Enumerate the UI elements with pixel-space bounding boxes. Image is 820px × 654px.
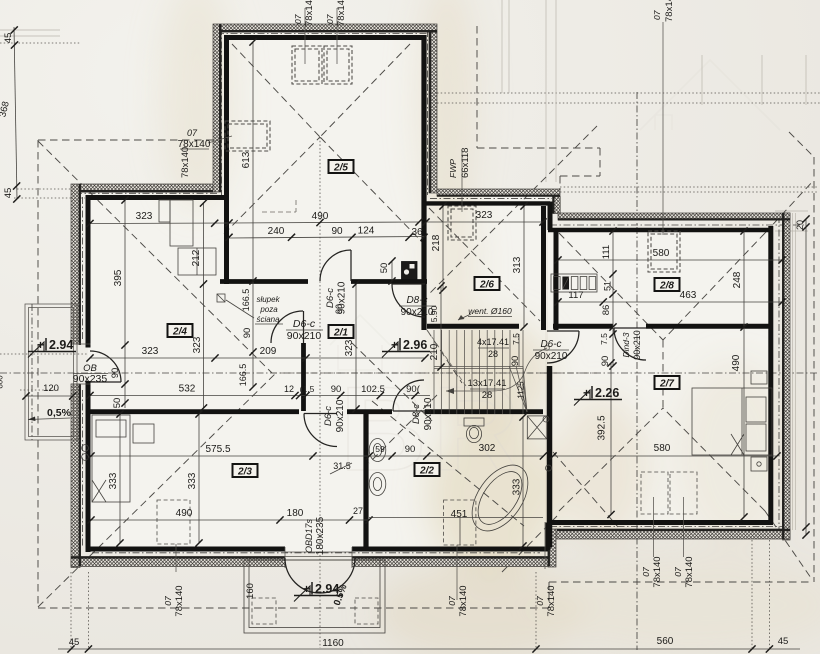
svg-text:2/1: 2/1 — [333, 328, 348, 339]
svg-text:45: 45 — [3, 188, 14, 199]
svg-text:240: 240 — [268, 226, 285, 237]
svg-text:323: 323 — [476, 210, 493, 221]
svg-text:302: 302 — [479, 443, 496, 454]
svg-text:2/4: 2/4 — [172, 327, 187, 338]
svg-text:124: 124 — [358, 226, 375, 237]
svg-text:180x235: 180x235 — [315, 516, 326, 555]
svg-text:392.5: 392.5 — [597, 415, 608, 440]
svg-text:613: 613 — [241, 151, 252, 168]
svg-text:90x210: 90x210 — [401, 307, 434, 318]
svg-text:90: 90 — [110, 368, 121, 379]
svg-text:D6-c: D6-c — [540, 339, 561, 350]
svg-text:451: 451 — [451, 509, 468, 520]
svg-text:395: 395 — [113, 269, 124, 286]
svg-text:28: 28 — [488, 349, 498, 359]
svg-text:2.26: 2.26 — [595, 386, 619, 400]
svg-text:90: 90 — [334, 304, 344, 314]
svg-text:0,5%: 0,5% — [47, 407, 72, 419]
svg-text:07: 07 — [447, 596, 457, 606]
svg-text:333: 333 — [512, 478, 523, 495]
svg-text:313: 313 — [512, 256, 523, 273]
svg-text:78x140: 78x140 — [664, 0, 675, 22]
svg-text:78x140: 78x140 — [652, 556, 663, 587]
svg-text:27: 27 — [353, 506, 363, 516]
svg-text:07: 07 — [641, 567, 651, 577]
svg-text:90: 90 — [331, 226, 343, 237]
svg-text:20: 20 — [795, 220, 805, 230]
svg-text:86: 86 — [601, 305, 612, 316]
svg-text:166.5: 166.5 — [238, 364, 248, 387]
svg-text:1125: 1125 — [517, 381, 526, 399]
svg-text:28: 28 — [482, 390, 493, 401]
svg-text:333: 333 — [108, 472, 119, 489]
svg-text:07: 07 — [325, 14, 335, 24]
svg-text:59: 59 — [375, 444, 385, 454]
svg-text:120: 120 — [43, 383, 59, 394]
svg-text:7.5: 7.5 — [599, 333, 609, 345]
svg-text:ścianą: ścianą — [256, 315, 280, 324]
svg-text:2.94: 2.94 — [49, 338, 73, 352]
svg-text:66x118: 66x118 — [460, 148, 471, 178]
svg-text:2/7: 2/7 — [659, 379, 674, 390]
svg-text:323: 323 — [136, 211, 153, 222]
svg-text:490: 490 — [731, 354, 742, 371]
svg-text:575.5: 575.5 — [205, 444, 230, 455]
svg-text:180: 180 — [287, 508, 304, 519]
svg-text:78x140: 78x140 — [336, 0, 347, 26]
svg-text:07: 07 — [673, 567, 683, 577]
svg-text:45: 45 — [69, 637, 80, 648]
svg-text:2/2: 2/2 — [419, 466, 434, 477]
svg-text:323: 323 — [344, 339, 355, 356]
svg-text:78x140: 78x140 — [458, 585, 469, 616]
svg-text:36: 36 — [411, 227, 423, 238]
svg-text:07: 07 — [652, 10, 662, 20]
svg-text:31.5: 31.5 — [333, 461, 351, 471]
svg-text:90x210: 90x210 — [535, 351, 568, 362]
svg-text:2/8: 2/8 — [659, 281, 674, 292]
svg-text:słupek: słupek — [256, 295, 280, 304]
svg-text:50: 50 — [112, 398, 123, 409]
svg-text:212: 212 — [191, 249, 202, 266]
svg-text:580: 580 — [654, 443, 671, 454]
svg-text:51: 51 — [603, 281, 613, 291]
svg-text:248: 248 — [732, 271, 743, 288]
svg-text:OBD17s: OBD17s — [304, 518, 314, 553]
svg-text:went. Ø160: went. Ø160 — [468, 306, 512, 316]
svg-text:07: 07 — [293, 14, 303, 24]
svg-text:90: 90 — [331, 384, 342, 395]
svg-text:07: 07 — [535, 596, 545, 606]
svg-text:1160: 1160 — [322, 638, 344, 649]
svg-text:78x140: 78x140 — [304, 0, 315, 26]
svg-text:90(: 90( — [406, 384, 421, 395]
svg-text:45: 45 — [3, 33, 14, 44]
svg-text:D6-c: D6-c — [323, 406, 334, 426]
svg-text:78x140: 78x140 — [180, 147, 191, 178]
svg-text:90: 90 — [405, 444, 416, 455]
svg-text:2/5: 2/5 — [333, 163, 348, 174]
svg-text:90: 90 — [600, 356, 611, 367]
svg-text:90: 90 — [242, 328, 253, 339]
svg-text:166.5: 166.5 — [241, 289, 251, 312]
svg-text:78x140: 78x140 — [684, 556, 695, 587]
svg-text:209: 209 — [260, 346, 277, 357]
svg-text:111: 111 — [601, 245, 612, 259]
svg-text:2/3: 2/3 — [237, 467, 252, 478]
svg-text:90: 90 — [510, 356, 521, 367]
svg-text:50: 50 — [379, 263, 390, 274]
svg-text:2.94: 2.94 — [315, 582, 339, 596]
svg-text:Dind-3: Dind-3 — [621, 332, 631, 357]
svg-text:580: 580 — [653, 248, 670, 259]
svg-text:323: 323 — [142, 346, 159, 357]
svg-text:333: 333 — [187, 472, 198, 489]
svg-text:4x17.41: 4x17.41 — [477, 337, 509, 347]
svg-text:90x210: 90x210 — [423, 397, 434, 430]
svg-text:210: 210 — [429, 343, 440, 360]
svg-text:45: 45 — [778, 636, 789, 647]
svg-text:D6-c: D6-c — [293, 318, 316, 330]
svg-text:D8-c: D8-c — [411, 404, 422, 424]
svg-text:463: 463 — [680, 290, 697, 301]
svg-text:(1.5: (1.5 — [300, 384, 315, 394]
svg-text:90x210: 90x210 — [287, 330, 322, 342]
svg-text:2.96: 2.96 — [403, 338, 427, 352]
svg-text:13x17.41: 13x17.41 — [467, 378, 506, 389]
svg-text:800: 800 — [0, 375, 5, 389]
svg-text:490: 490 — [312, 211, 329, 222]
svg-text:07: 07 — [187, 128, 198, 138]
svg-text:90x235: 90x235 — [73, 373, 108, 385]
svg-text:102.5: 102.5 — [361, 384, 385, 395]
svg-text:12: 12 — [284, 384, 294, 394]
svg-text:323: 323 — [192, 336, 203, 353]
svg-text:560: 560 — [657, 636, 674, 647]
svg-text:490: 490 — [176, 508, 193, 519]
svg-text:532: 532 — [179, 384, 196, 395]
svg-text:78x140: 78x140 — [546, 585, 557, 616]
svg-text:90x210: 90x210 — [335, 399, 346, 432]
svg-text:218: 218 — [431, 234, 442, 251]
svg-text:7.5: 7.5 — [511, 333, 521, 345]
svg-text:117: 117 — [568, 290, 583, 301]
svg-text:78x140: 78x140 — [174, 585, 185, 616]
svg-text:D8-c: D8-c — [406, 295, 427, 306]
svg-text:90x210: 90x210 — [632, 330, 642, 360]
svg-text:07: 07 — [163, 596, 173, 606]
svg-text:160: 160 — [245, 583, 256, 599]
svg-text:FWP: FWP — [448, 159, 458, 178]
svg-text:2/6: 2/6 — [479, 280, 494, 291]
svg-text:poza: poza — [259, 305, 278, 314]
